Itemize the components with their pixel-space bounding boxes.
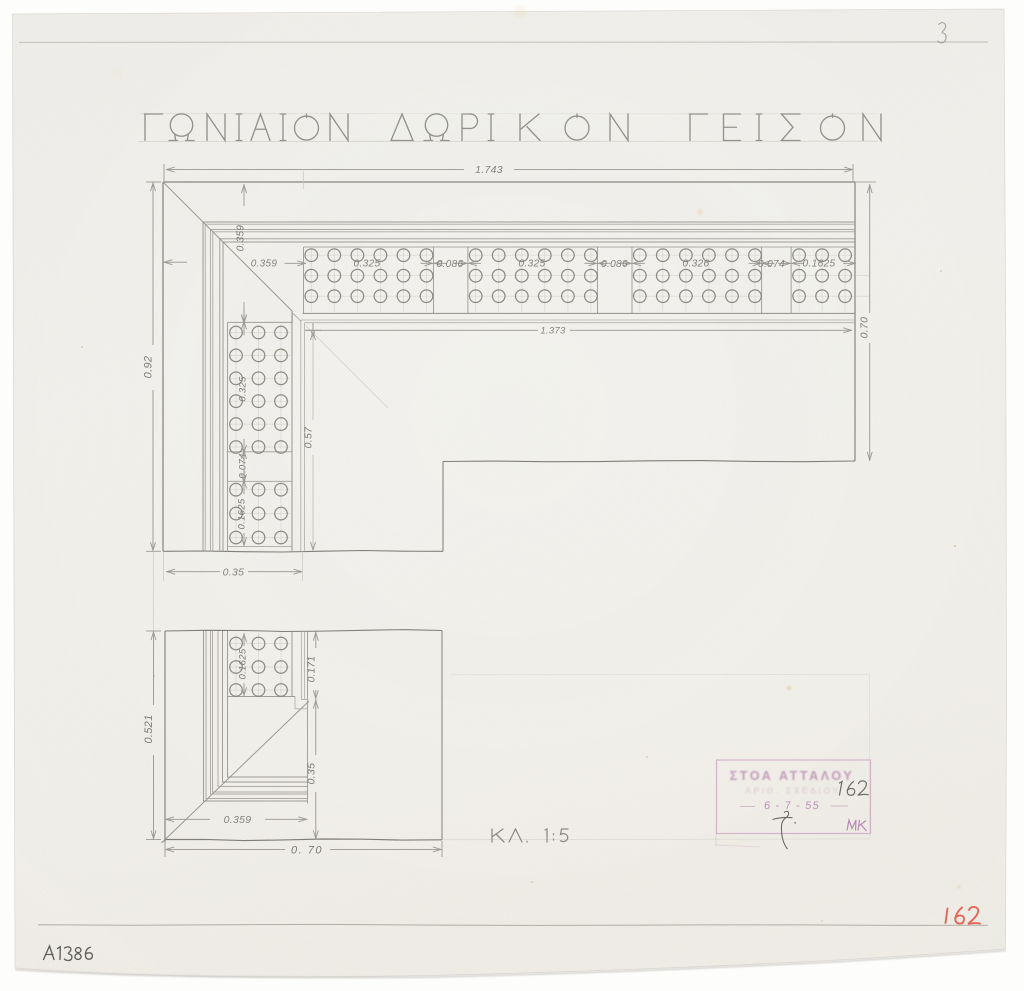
svg-text:ΣΤΟΑ ΑΤΤΑΛΟΥ: ΣΤΟΑ ΑΤΤΑΛΟΥ <box>730 769 855 783</box>
svg-text:0.1625: 0.1625 <box>237 498 248 529</box>
svg-text:0.086: 0.086 <box>601 259 628 270</box>
svg-text:0.171: 0.171 <box>307 656 318 683</box>
svg-text:0.1625: 0.1625 <box>803 259 836 270</box>
svg-text:0.325: 0.325 <box>519 259 546 270</box>
svg-text:1.743: 1.743 <box>475 164 503 176</box>
svg-text:0.1625: 0.1625 <box>238 648 249 679</box>
svg-text:0.359: 0.359 <box>224 814 252 826</box>
svg-text:1.373: 1.373 <box>540 326 566 337</box>
svg-text:6 - 7 - 55: 6 - 7 - 55 <box>763 800 820 812</box>
svg-text:0.57: 0.57 <box>303 426 315 448</box>
svg-text:0.35: 0.35 <box>306 763 318 785</box>
svg-text:0.70: 0.70 <box>859 317 871 339</box>
svg-text:0.326: 0.326 <box>683 259 710 270</box>
svg-text:0.086: 0.086 <box>437 259 464 270</box>
svg-text:0.35: 0.35 <box>223 566 245 578</box>
svg-text:0.325: 0.325 <box>354 259 381 270</box>
svg-text:0.074: 0.074 <box>758 259 785 270</box>
svg-text:0.074: 0.074 <box>238 453 249 478</box>
svg-text:0.325: 0.325 <box>238 376 249 402</box>
svg-text:0.92: 0.92 <box>143 356 155 379</box>
svg-text:0.521: 0.521 <box>143 714 155 743</box>
svg-text:ΑΡΙΘ. ΣΧΕΔΙΟΥ: ΑΡΙΘ. ΣΧΕΔΙΟΥ <box>745 786 840 796</box>
svg-text:0.359: 0.359 <box>236 225 247 252</box>
svg-text:0. 70: 0. 70 <box>291 845 323 857</box>
svg-text:0.359: 0.359 <box>251 258 278 269</box>
